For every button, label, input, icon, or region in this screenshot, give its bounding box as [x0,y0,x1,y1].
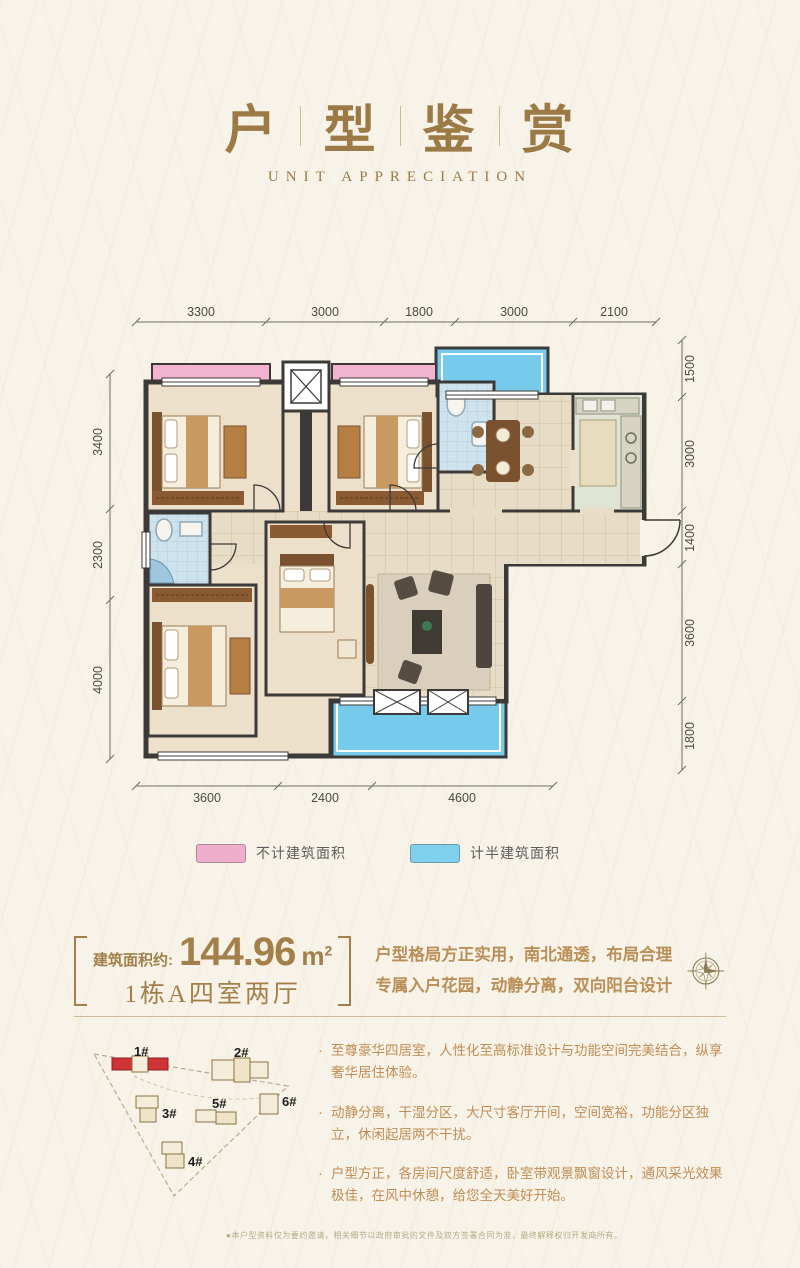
selling-point: · 户型方正，各房间尺度舒适，卧室带观景飘窗设计，通风采光效果极佳，在风中休憩，… [318,1163,730,1208]
building-6 [260,1094,278,1114]
selling-point: · 动静分离，干湿分区，大尺寸客厅开间，空间宽裕，功能分区独立，休闲起居两不干扰… [318,1102,730,1147]
bathroom-left [148,513,210,585]
wall-opening [580,508,614,515]
left-bracket [74,936,87,1006]
legend-item-pink: 不计建筑面积 [196,843,346,863]
area-unit: m2 [301,941,332,972]
area-block: 建筑面积约: 144.96 m2 1栋A四室两厅 [87,932,338,1010]
title-char: 型 [323,88,377,163]
poster-page: { "header": { "t0": "户", "t1": "型", "t2"… [0,0,800,1268]
dim-top: 1800 [405,305,433,319]
building-label: 4# [188,1154,203,1169]
dim-bottom: 3600 [193,791,221,805]
title-separator [300,106,301,146]
title-separator [499,106,500,146]
dim-top: 3300 [187,305,215,319]
selling-point-text: 动静分离，干湿分区，大尺寸客厅开间，空间宽裕，功能分区独立，休闲起居两不干扰。 [331,1102,730,1147]
dim-left: 2300 [91,541,105,569]
dim-left: 4000 [91,666,105,694]
kitchen [569,395,642,511]
unit-description-line2: 专属入户花园，动静分离，双向阳台设计 [375,971,672,1002]
bullet-dot: · [318,1163,323,1208]
unit-description-line1: 户型格局方正实用，南北通透，布局合理 [375,940,672,971]
title-char: 赏 [522,88,576,163]
building-label: 6# [282,1094,297,1109]
duct-shaft [374,690,468,714]
wall-opening [450,508,502,515]
title-separator [400,106,401,146]
building-label: 5# [212,1096,227,1111]
building-3 [136,1096,158,1122]
page-subtitle: UNIT APPRECIATION [0,169,800,186]
building-2 [212,1058,268,1082]
disclaimer-footnote: ●本户型资料仅为要约邀请，相关细节以政府审批的文件及双方签署合同为准，最终解释权… [226,1230,622,1241]
unit-description: 户型格局方正实用，南北通透，布局合理 专属入户花园，动静分离，双向阳台设计 [375,940,672,1001]
legend-swatch-pink [196,844,246,863]
title-char: 户 [224,88,278,163]
building-5 [196,1110,236,1124]
dim-right: 3600 [683,619,697,647]
selling-point-text: 至尊豪华四居室，人性化至高标准设计与功能空间完美结合，纵享奢华居住体验。 [331,1040,730,1085]
legend-label: 计半建筑面积 [470,843,560,863]
dim-right: 1500 [683,355,697,383]
building-label: 3# [162,1106,177,1121]
selling-point: · 至尊豪华四居室，人性化至高标准设计与功能空间完美结合，纵享奢华居住体验。 [318,1040,730,1085]
dim-bottom: 2400 [311,791,339,805]
entry-door [640,520,680,556]
dim-bottom: 4600 [448,791,476,805]
dim-right: 1800 [683,722,697,750]
page-title: 户 型 鉴 赏 [0,88,800,163]
area-label: 建筑面积约: [93,949,173,970]
building-4 [162,1142,184,1168]
dim-top: 3000 [311,305,339,319]
bullet-dot: · [318,1040,323,1085]
selling-points: · 至尊豪华四居室，人性化至高标准设计与功能空间完美结合，纵享奢华居住体验。 ·… [318,1040,730,1225]
unit-title: 1栋A四室两厅 [93,974,332,1010]
right-bracket [338,936,351,1006]
divider-rule [74,1016,726,1017]
building-label: 2# [234,1046,249,1060]
page-header: 户 型 鉴 赏 UNIT APPRECIATION [0,88,800,186]
foyer-floor [438,472,494,511]
legend-item-blue: 计半建筑面积 [410,843,560,863]
info-strip: 建筑面积约: 144.96 m2 1栋A四室两厅 户型格局方正实用，南北通透，布… [74,936,726,1006]
dim-right: 3000 [683,440,697,468]
legend-swatch-blue [410,844,460,863]
selling-point-text: 户型方正，各房间尺度舒适，卧室带观景飘窗设计，通风采光效果极佳，在风中休憩，给您… [331,1163,730,1208]
title-char: 鉴 [423,88,477,163]
site-plan: 1# 2# 3# 4# 5# 6# [74,1046,306,1232]
compass-icon [686,945,726,997]
dim-left: 3400 [91,428,105,456]
building-label: 1# [134,1046,149,1059]
plan-legend: 不计建筑面积 计半建筑面积 [196,843,560,863]
dim-top: 2100 [600,305,628,319]
bullet-dot: · [318,1102,323,1147]
dim-right: 1400 [683,524,697,552]
floor-plan-diagram: 3300 3000 1800 3000 2100 3600 2400 4600 … [78,292,722,816]
dim-top: 3000 [500,305,528,319]
legend-label: 不计建筑面积 [256,843,346,863]
area-value: 144.96 [179,932,295,972]
living-room [366,570,492,690]
